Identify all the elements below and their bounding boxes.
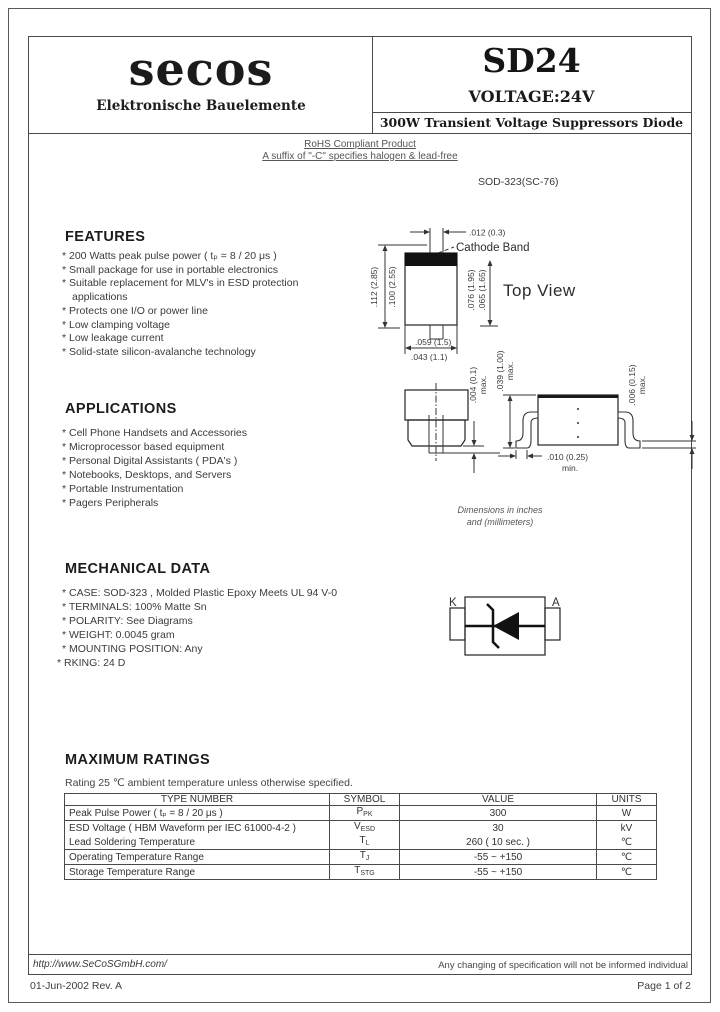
feature-item: * Low clamping voltage	[62, 319, 372, 333]
feature-item: * Solid-state silicon-avalanche technolo…	[62, 346, 372, 360]
mechanical-item: * MOUNTING POSITION: Any	[62, 642, 392, 656]
rohs-note: RoHS Compliant Product A suffix of "-C" …	[28, 139, 692, 162]
application-item: * Notebooks, Desktops, and Servers	[62, 468, 372, 482]
dim-length-min-label: .100 (2.55)	[387, 266, 397, 307]
rating-units: W	[597, 806, 657, 821]
applications-list: * Cell Phone Handsets and Accessories * …	[62, 426, 372, 510]
rating-type: Lead Soldering Temperature	[65, 835, 330, 850]
brand-block: secos Elektronische Bauelemente	[30, 44, 372, 114]
ratings-title: MAXIMUM RATINGS	[65, 752, 210, 768]
title-divider	[373, 112, 691, 113]
mechanical-item: * TERMINALS: 100% Matte Sn	[62, 600, 392, 614]
rating-value: 30	[400, 821, 597, 836]
part-number: SD24	[372, 42, 691, 80]
rohs-line1: RoHS Compliant Product	[28, 139, 692, 151]
dim-width-max-label: .059 (1.5)	[415, 337, 452, 347]
col-header-type: TYPE NUMBER	[65, 794, 330, 806]
logo-letter-accent: e	[156, 42, 186, 96]
table-row: Storage Temperature Range TSTG -55 ~ +15…	[65, 865, 657, 880]
symbol-sub: L	[366, 840, 370, 847]
rating-type: ESD Voltage ( HBM Waveform per IEC 61000…	[65, 821, 330, 836]
dim-body-min-label: .065 (1.65)	[477, 269, 487, 310]
revision-date: 01-Jun-2002 Rev. A	[30, 980, 122, 992]
rating-symbol: VESD	[330, 821, 400, 836]
symbol-sub: J	[366, 855, 370, 862]
cathode-band-mark	[405, 253, 457, 266]
top-view-label: Top View	[503, 281, 576, 300]
ratings-table: TYPE NUMBER SYMBOL VALUE UNITS Peak Puls…	[64, 793, 657, 880]
application-item: * Portable Instrumentation	[62, 482, 372, 496]
rating-value: -55 ~ +150	[400, 865, 597, 880]
brand-logo: secos	[30, 44, 372, 94]
symbol-sub: PK	[363, 811, 372, 818]
applications-title: APPLICATIONS	[65, 401, 177, 417]
mechanical-title: MECHANICAL DATA	[65, 561, 210, 577]
min-label: min.	[562, 463, 578, 473]
ratings-note: Rating 25 ℃ ambient temperature unless o…	[65, 777, 353, 789]
package-name: SOD-323(SC-76)	[478, 176, 559, 188]
feature-item-continuation: applications	[62, 291, 372, 305]
rating-units: ℃	[597, 835, 657, 850]
dim-foot-length-label: .010 (0.25)	[547, 452, 588, 462]
mechanical-item: * WEIGHT: 0.0045 gram	[62, 628, 392, 642]
mechanical-list: * CASE: SOD-323 , Molded Plastic Epoxy M…	[62, 586, 392, 670]
feature-item: * Low leakage current	[62, 332, 372, 346]
table-header-row: TYPE NUMBER SYMBOL VALUE UNITS	[65, 794, 657, 806]
footer-divider	[29, 954, 691, 955]
anode-pin-label: A	[552, 597, 560, 609]
table-row: Peak Pulse Power ( tₚ = 8 / 20 μs ) PPK …	[65, 806, 657, 821]
dimension-note-line1: Dimensions in inches	[457, 505, 543, 515]
header-divider	[29, 133, 691, 134]
diode-symbol-diagram: K A	[440, 585, 570, 665]
application-item: * Personal Digital Assistants ( PDA's )	[62, 454, 372, 468]
col-header-symbol: SYMBOL	[330, 794, 400, 806]
rating-symbol: TJ	[330, 850, 400, 865]
max-label: max.	[505, 362, 515, 380]
symbol-main: V	[354, 821, 361, 832]
rating-type: Peak Pulse Power ( tₚ = 8 / 20 μs )	[65, 806, 330, 821]
dim-lead-thickness-label: .006 (0.15)	[627, 364, 637, 405]
footer-disclaimer: Any changing of specification will not b…	[438, 960, 688, 971]
feature-item: * Suitable replacement for MLV's in ESD …	[62, 277, 372, 291]
mechanical-item: * CASE: SOD-323 , Molded Plastic Epoxy M…	[62, 586, 392, 600]
rating-type: Operating Temperature Range	[65, 850, 330, 865]
dim-height-label: .039 (1.00)	[495, 350, 505, 391]
diode-triangle	[493, 612, 519, 640]
col-header-units: UNITS	[597, 794, 657, 806]
rating-type: Storage Temperature Range	[65, 865, 330, 880]
features-list: * 200 Watts peak pulse power ( tₚ = 8 / …	[62, 250, 372, 360]
dim-standoff-label: .004 (0.1)	[468, 367, 478, 404]
logo-letters: cos	[186, 42, 274, 96]
max-label: max.	[478, 376, 488, 394]
device-description: 300W Transient Voltage Suppressors Diode	[372, 115, 691, 130]
feature-item: * Protects one I/O or power line	[62, 305, 372, 319]
cathode-pin-label: K	[449, 597, 457, 609]
table-row: Operating Temperature Range TJ -55 ~ +15…	[65, 850, 657, 865]
right-gullwing-lead	[618, 412, 640, 448]
application-item: * Pagers Peripherals	[62, 496, 372, 510]
rating-symbol: PPK	[330, 806, 400, 821]
dim-lead-width-label: .012 (0.3)	[469, 228, 506, 238]
symbol-sub: STG	[360, 870, 374, 877]
rating-value: 260 ( 10 sec. )	[400, 835, 597, 850]
rating-units: ℃	[597, 865, 657, 880]
cathode-band-label: Cathode Band	[456, 242, 530, 254]
package-outline-drawing: .012 (0.3) Cathode Band .112 (2.85) .100…	[370, 195, 700, 540]
max-label: max.	[637, 376, 647, 394]
features-title: FEATURES	[65, 229, 145, 245]
page-number: Page 1 of 2	[637, 980, 691, 992]
rating-value: 300	[400, 806, 597, 821]
rohs-line2: A suffix of "-C" specifies halogen & lea…	[28, 151, 692, 163]
mechanical-item: * POLARITY: See Diagrams	[62, 614, 392, 628]
datasheet-page: secos Elektronische Bauelemente SD24 VOL…	[0, 0, 720, 1012]
symbol-sub: ESD	[361, 826, 375, 833]
feature-item: * 200 Watts peak pulse power ( tₚ = 8 / …	[62, 250, 372, 264]
dim-width-min-label: .043 (1.1)	[411, 352, 448, 362]
company-url: http://www.SeCoSGmbH.com/	[33, 959, 167, 970]
application-item: * Microprocessor based equipment	[62, 440, 372, 454]
dimension-note-line2: and (millimeters)	[467, 517, 534, 527]
mechanical-item: * RKING: 24 D	[57, 656, 392, 670]
table-row: Lead Soldering Temperature TL 260 ( 10 s…	[65, 835, 657, 850]
brand-subtitle: Elektronische Bauelemente	[30, 98, 372, 114]
left-gullwing-lead	[516, 412, 538, 448]
application-item: * Cell Phone Handsets and Accessories	[62, 426, 372, 440]
voltage-rating: VOLTAGE:24V	[372, 87, 691, 106]
rating-symbol: TSTG	[330, 865, 400, 880]
col-header-value: VALUE	[400, 794, 597, 806]
title-block: SD24 VOLTAGE:24V	[372, 42, 691, 106]
rating-units: ℃	[597, 850, 657, 865]
table-row: ESD Voltage ( HBM Waveform per IEC 61000…	[65, 821, 657, 836]
feature-item: * Small package for use in portable elec…	[62, 264, 372, 278]
dim-length-max-label: .112 (2.85)	[369, 267, 379, 308]
rating-symbol: TL	[330, 835, 400, 850]
rating-units: kV	[597, 821, 657, 836]
logo-letter: s	[129, 42, 156, 96]
dim-body-max-label: .076 (1.95)	[466, 269, 476, 310]
rating-value: -55 ~ +150	[400, 850, 597, 865]
